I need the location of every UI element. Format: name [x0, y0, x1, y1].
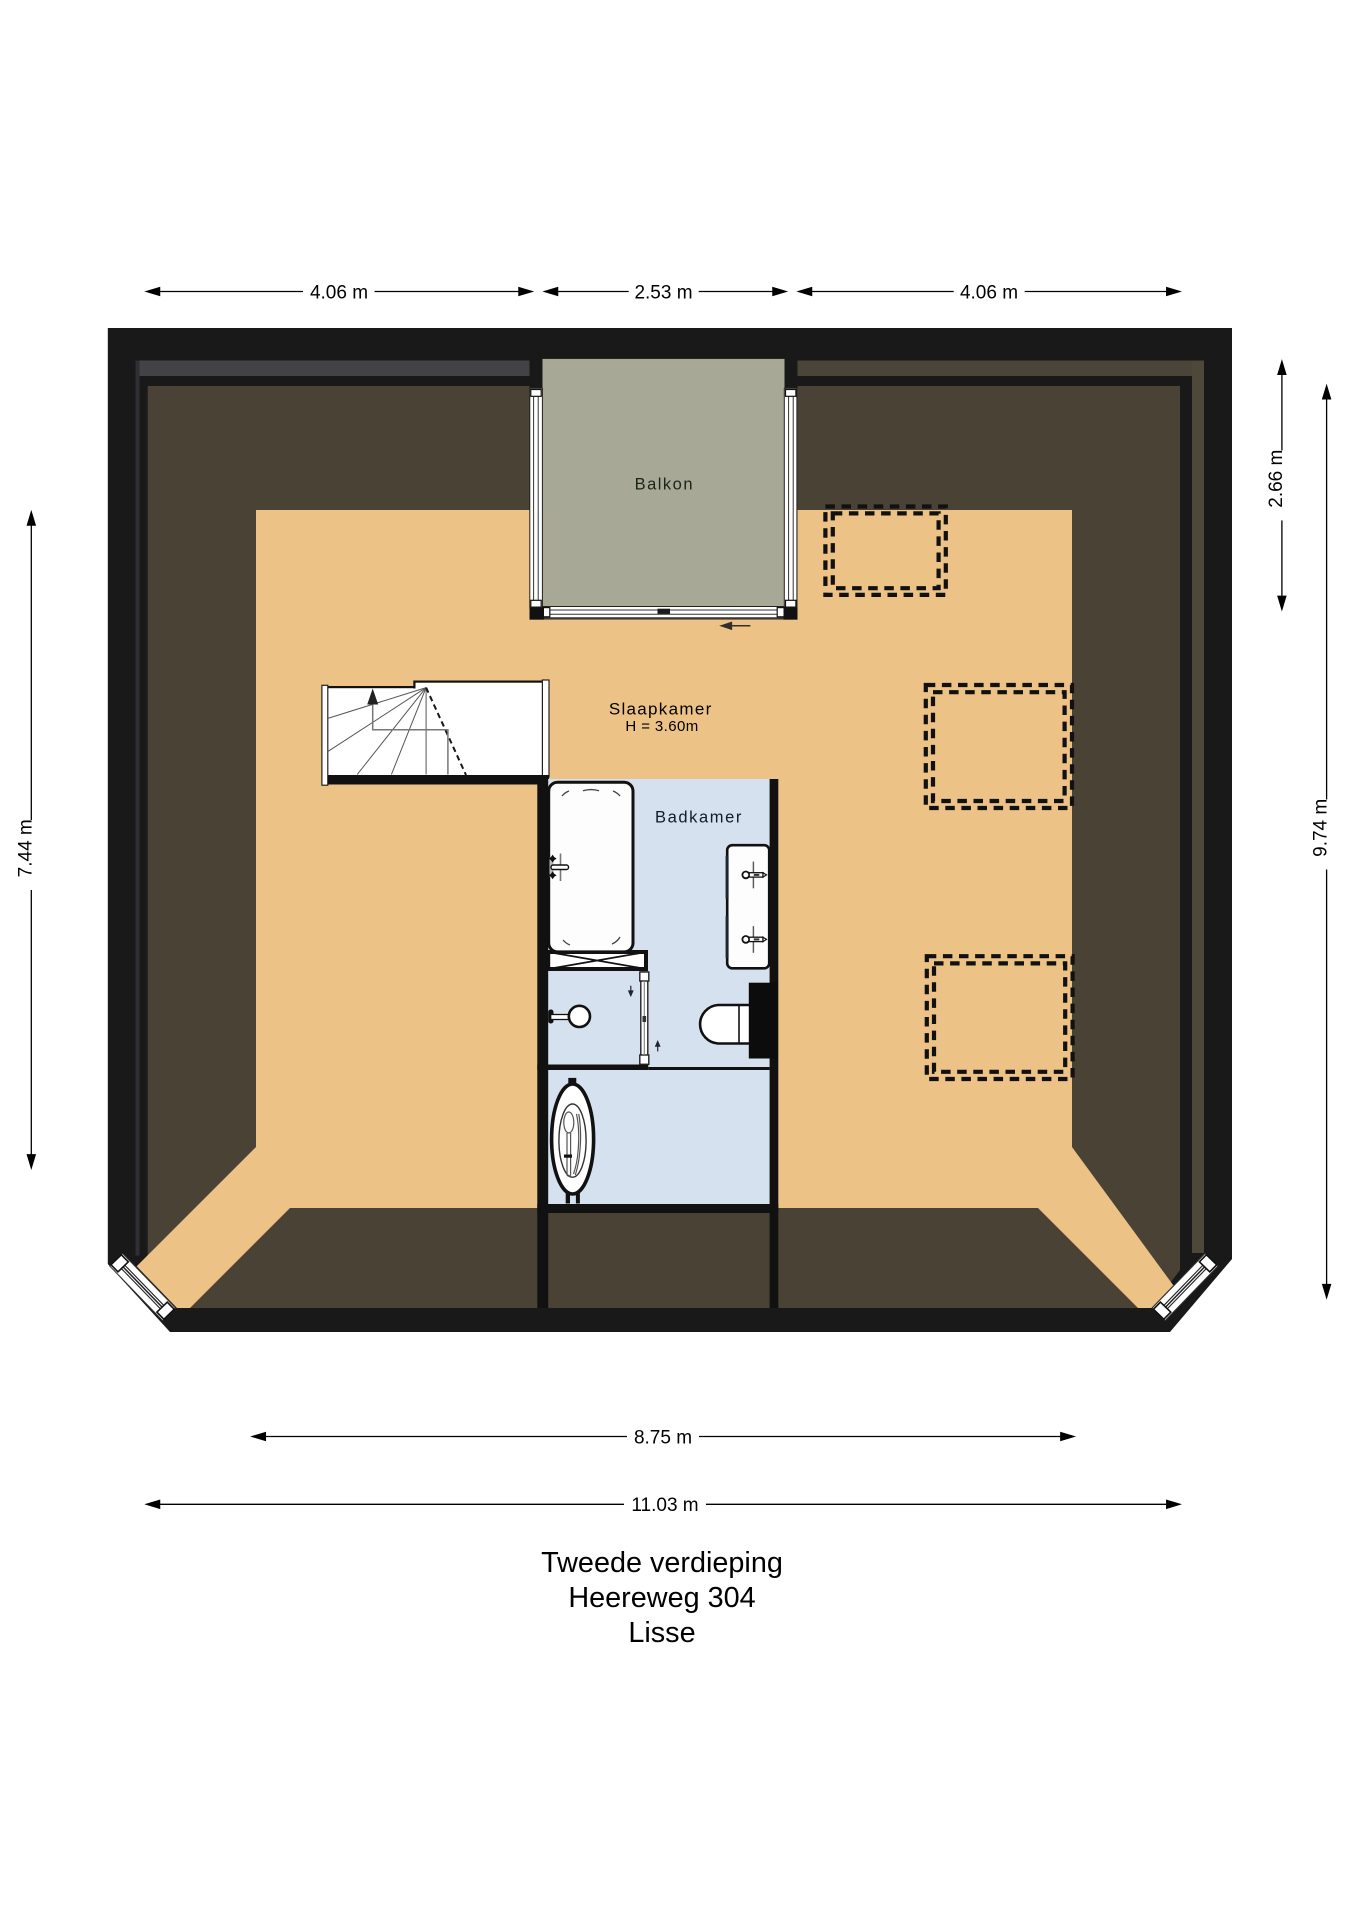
svg-text:7.44 m: 7.44 m	[15, 819, 36, 877]
svg-text:Badkamer: Badkamer	[655, 809, 743, 827]
svg-text:4.06 m: 4.06 m	[310, 282, 368, 303]
svg-text:8.75 m: 8.75 m	[634, 1427, 692, 1448]
svg-text:Tweede verdieping: Tweede verdieping	[541, 1547, 783, 1579]
svg-text:9.74 m: 9.74 m	[1311, 799, 1332, 857]
svg-text:2.66 m: 2.66 m	[1266, 450, 1287, 508]
svg-text:11.03 m: 11.03 m	[631, 1495, 698, 1516]
svg-text:Balkon: Balkon	[635, 475, 694, 493]
svg-text:H = 3.60m: H = 3.60m	[625, 718, 698, 735]
svg-text:Slaapkamer: Slaapkamer	[609, 700, 713, 719]
svg-text:Lisse: Lisse	[628, 1617, 695, 1649]
svg-text:2.53 m: 2.53 m	[634, 282, 692, 303]
svg-text:4.06 m: 4.06 m	[960, 282, 1018, 303]
svg-text:Heereweg 304: Heereweg 304	[568, 1582, 755, 1614]
